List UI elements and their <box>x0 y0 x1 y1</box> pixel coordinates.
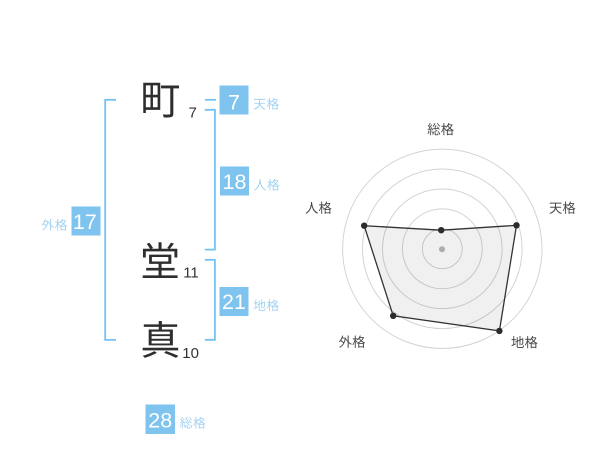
svg-text:18: 18 <box>223 170 247 194</box>
svg-text:11: 11 <box>183 264 199 281</box>
svg-text:28: 28 <box>148 408 172 432</box>
svg-text:17: 17 <box>73 210 97 234</box>
svg-text:21: 21 <box>222 290 246 314</box>
svg-text:7: 7 <box>189 105 197 122</box>
svg-text:10: 10 <box>182 345 199 362</box>
svg-text:7: 7 <box>228 91 240 115</box>
